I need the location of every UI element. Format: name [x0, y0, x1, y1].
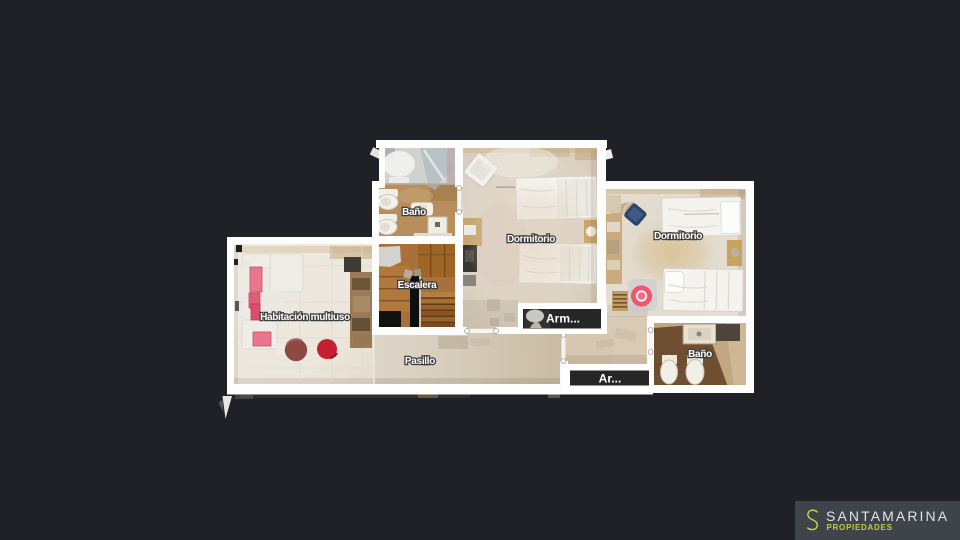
svg-text:Pasillo: Pasillo — [405, 356, 435, 367]
svg-text:Baño: Baño — [402, 207, 426, 218]
svg-text:PROPIEDADES: PROPIEDADES — [827, 523, 893, 532]
svg-text:Dormitorio: Dormitorio — [654, 231, 702, 242]
svg-text:Baño: Baño — [688, 349, 712, 360]
svg-text:Arm...: Arm... — [546, 312, 580, 326]
svg-text:Escalera: Escalera — [398, 280, 437, 291]
svg-text:Dormitorio: Dormitorio — [507, 234, 555, 245]
svg-text:Ar...: Ar... — [599, 372, 622, 386]
svg-text:Habitación multiuso: Habitación multiuso — [260, 312, 350, 323]
svg-text:SANTAMARINA: SANTAMARINA — [826, 508, 949, 524]
